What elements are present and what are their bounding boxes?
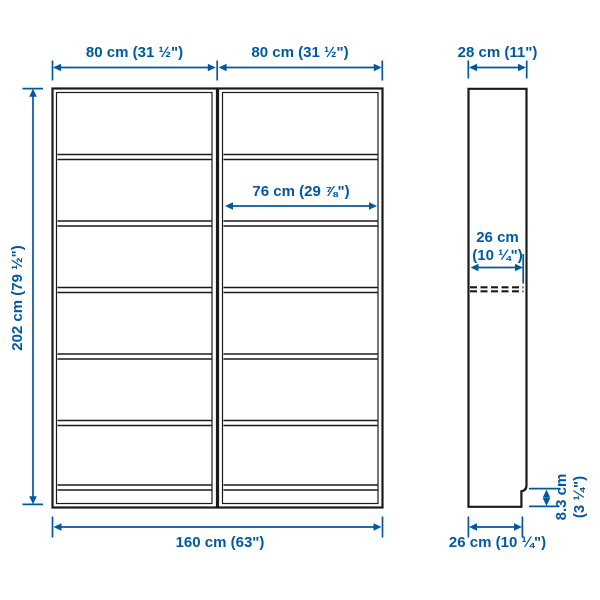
front-view <box>53 89 383 508</box>
dim-total-height-label: 202 cm (79 ½") <box>9 223 27 373</box>
adjustable-shelf-dashed-line <box>470 287 524 291</box>
dim-line-side-depth <box>468 61 526 79</box>
front-right-unit-shelves <box>224 155 378 491</box>
dim-left-unit-width-label: 80 cm (31 ½") <box>52 44 217 62</box>
dim-side-depth-label: 28 cm (11") <box>447 44 548 62</box>
dim-base-depth-label: 26 cm (10 ¼") <box>427 534 568 552</box>
dim-line-right-unit-width <box>219 61 383 81</box>
product-dimension-diagram: 80 cm (31 ½") 80 cm (31 ½") 28 cm (11") … <box>0 0 600 600</box>
diagram-linework <box>0 0 600 600</box>
side-view-outline <box>469 89 527 507</box>
dim-plinth-height-label: 8.3 cm (3 ¼") <box>553 456 589 538</box>
side-view <box>469 89 527 507</box>
dim-plinth-height-line2: (3 ¼") <box>571 456 589 538</box>
dim-shelf-inner-depth-line1: 26 cm <box>447 229 548 247</box>
dim-total-width-label: 160 cm (63") <box>118 534 322 552</box>
dim-shelf-inner-depth-label: 26 cm (10 ¼") <box>447 229 548 265</box>
dim-shelf-inner-depth-line2: (10 ¼") <box>447 247 548 265</box>
front-left-unit <box>53 89 218 508</box>
front-right-unit <box>218 89 383 508</box>
dimension-lines <box>23 61 560 538</box>
front-left-unit-shelves <box>58 155 212 491</box>
dim-line-shelf-inner-width <box>225 202 377 210</box>
dim-shelf-inner-width-label: 76 cm (29 ⅞") <box>225 183 377 201</box>
dim-plinth-height-line1: 8.3 cm <box>553 456 571 538</box>
dim-right-unit-width-label: 80 cm (31 ½") <box>217 44 383 62</box>
dim-line-left-unit-width <box>53 61 218 81</box>
